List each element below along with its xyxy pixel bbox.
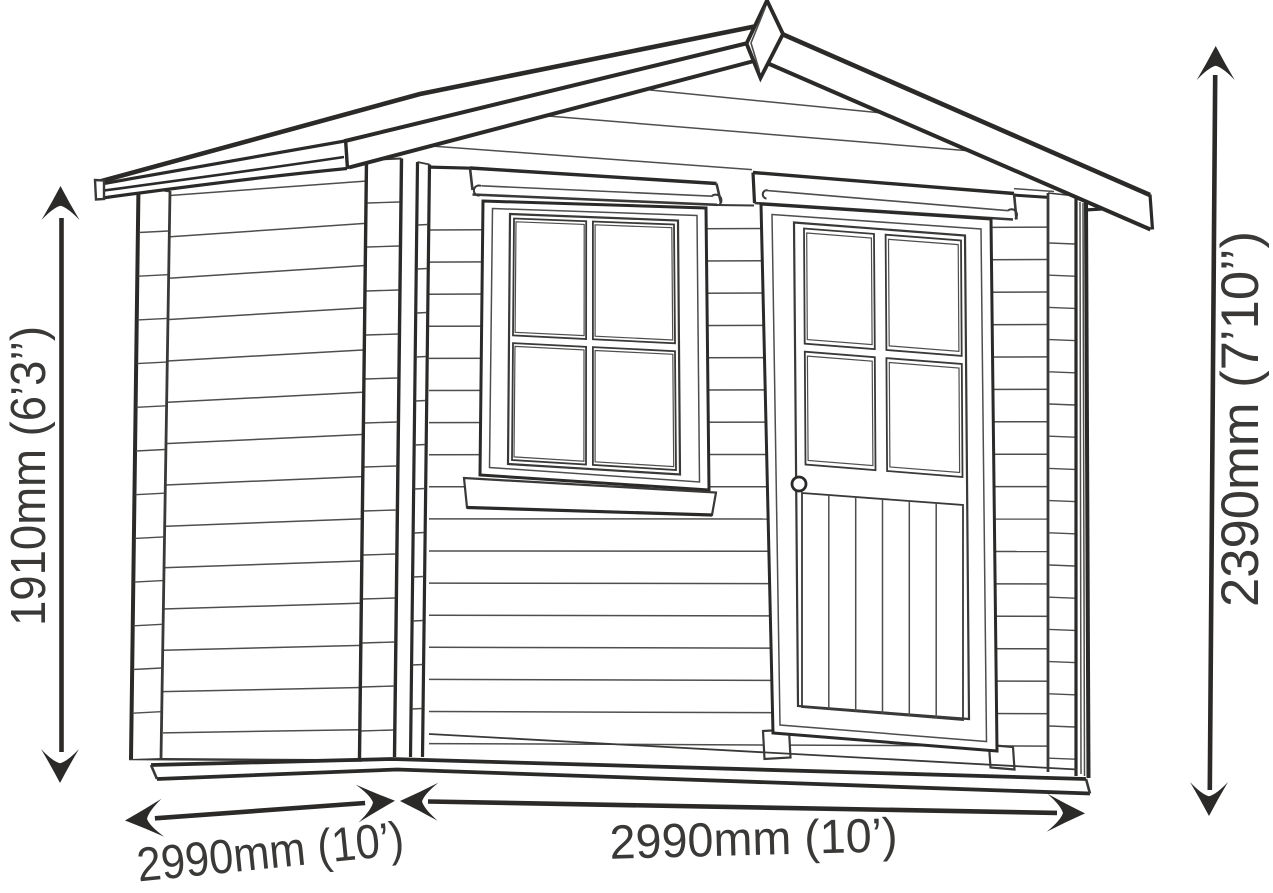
- svg-text:2390mm (7’10’’): 2390mm (7’10’’): [1211, 231, 1270, 607]
- svg-text:1910mm (6’3’’): 1910mm (6’3’’): [2, 326, 56, 626]
- svg-text:2990mm (10’): 2990mm (10’): [609, 809, 898, 870]
